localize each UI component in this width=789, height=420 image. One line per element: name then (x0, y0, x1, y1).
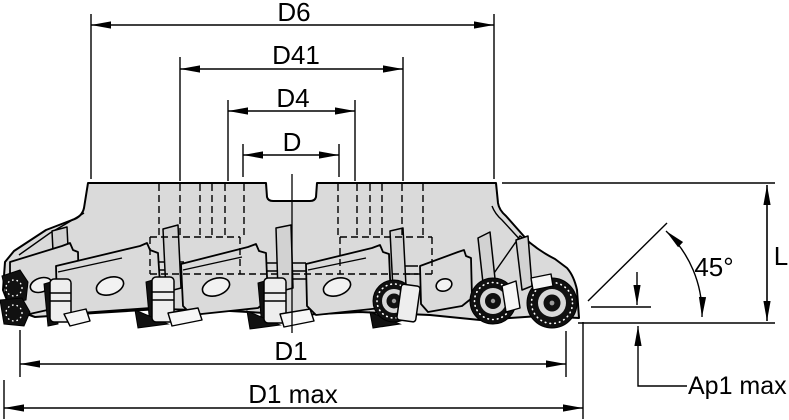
dim-label-d1: D1 (274, 336, 307, 366)
dim-label-d4: D4 (276, 83, 309, 113)
dim-d1: D1 (20, 330, 566, 377)
angle-45: 45° (588, 223, 734, 317)
cutter-body (0, 183, 579, 329)
dim-label-ap1-max: Ap1 max (688, 372, 787, 400)
dim-d: D (243, 127, 339, 177)
dim-label-d41: D41 (272, 40, 320, 70)
dim-label-d6: D6 (277, 0, 310, 27)
angle-reference-line (588, 223, 667, 301)
drawing-canvas: D6 D41 D4 D D1 D1 max L (0, 0, 789, 420)
dim-ap1-max: Ap1 max (591, 272, 787, 400)
ap1-leader (638, 326, 687, 386)
dim-label-l: L (774, 241, 788, 271)
dim-label-d1-max: D1 max (248, 379, 338, 409)
face-mill-diagram: D6 D41 D4 D D1 D1 max L (0, 0, 789, 420)
angle-label: 45° (694, 252, 733, 282)
dim-label-d: D (283, 127, 302, 157)
